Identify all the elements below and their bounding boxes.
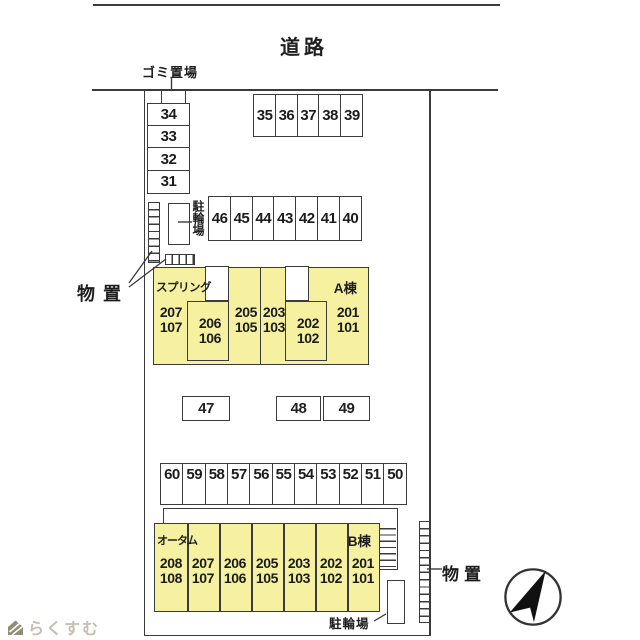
parking-space: 52 <box>339 463 363 505</box>
storage-shed-left-horizontal-icon <box>165 254 195 265</box>
parking-space: 34 <box>147 103 190 127</box>
parking-space: 57 <box>227 463 251 505</box>
storage-label-left: 物置 <box>77 280 129 306</box>
unit-numbers: 201101 <box>343 556 383 585</box>
unit-numbers: 201101 <box>328 305 368 334</box>
bicycle-parking-box-left <box>168 203 190 245</box>
parking-space: 41 <box>317 196 340 241</box>
compass-north-icon <box>502 566 564 628</box>
parking-space: 46 <box>208 196 231 241</box>
building-a-units: 207107206106205105203103202102201101 <box>154 268 368 364</box>
parking-row-40-46: 46454443424140 <box>208 196 362 241</box>
storage-label-right: 物置 <box>442 560 486 585</box>
parking-space: 42 <box>295 196 318 241</box>
top-border-line <box>93 4 500 7</box>
building-b: オータム B棟 20810820710720610620510520310320… <box>154 523 380 612</box>
parking-space: 51 <box>361 463 385 505</box>
parking-row-50-60: 6059585756555453525150 <box>160 463 407 505</box>
parking-space-47: 47 <box>182 396 230 421</box>
bicycle-parking-label-bottom: 駐輪場 <box>329 613 370 632</box>
parking-space: 60 <box>160 463 184 505</box>
parking-space: 32 <box>147 147 190 171</box>
parking-space: 45 <box>230 196 253 241</box>
parking-space: 58 <box>205 463 229 505</box>
parking-space: 44 <box>252 196 275 241</box>
site-plan: 道路 ゴミ置場 34333231 3536373839 464544434241… <box>0 0 640 640</box>
parking-space: 59 <box>182 463 206 505</box>
bicycle-parking-label-left: 駐輪場 <box>190 200 205 250</box>
parking-space: 40 <box>339 196 362 241</box>
parking-space: 50 <box>383 463 407 505</box>
bicycle-parking-box-bottom <box>387 580 405 624</box>
parking-space: 35 <box>253 94 276 137</box>
unit-numbers: 202102 <box>288 316 328 345</box>
logo-text: らくすむ <box>28 615 100 639</box>
parking-row-35-39: 3536373839 <box>253 94 364 137</box>
parking-space: 55 <box>272 463 296 505</box>
parking-space: 54 <box>294 463 318 505</box>
storage-shed-left-icon <box>148 202 161 263</box>
parking-space-48: 48 <box>276 396 321 421</box>
parking-space: 56 <box>249 463 273 505</box>
parking-space: 37 <box>297 94 320 137</box>
parking-space: 38 <box>318 94 341 137</box>
parking-column-31-34: 34333231 <box>147 104 190 194</box>
parking-space: 36 <box>275 94 298 137</box>
logo-house-icon <box>7 619 24 636</box>
unit-numbers: 206106 <box>190 316 230 345</box>
parking-space: 53 <box>316 463 340 505</box>
parking-space: 43 <box>273 196 296 241</box>
unit-numbers: 207107 <box>151 305 191 334</box>
site-boundary-left <box>144 89 146 636</box>
garbage-area-label: ゴミ置場 <box>142 62 198 81</box>
parking-space: 33 <box>147 125 190 149</box>
road-edge-line <box>92 89 498 91</box>
storage-shed-right-icon <box>419 521 430 623</box>
building-a: スプリング A棟 2071072061062051052031032021022… <box>153 267 369 365</box>
parking-space: 39 <box>340 94 363 137</box>
site-boundary-bottom <box>144 635 431 637</box>
road-label: 道路 <box>280 31 328 60</box>
parking-space: 31 <box>147 170 190 194</box>
logo: らくすむ <box>7 615 100 639</box>
parking-space-49: 49 <box>323 396 370 421</box>
building-b-units: 2081082071072061062051052031032021022011… <box>155 524 379 611</box>
